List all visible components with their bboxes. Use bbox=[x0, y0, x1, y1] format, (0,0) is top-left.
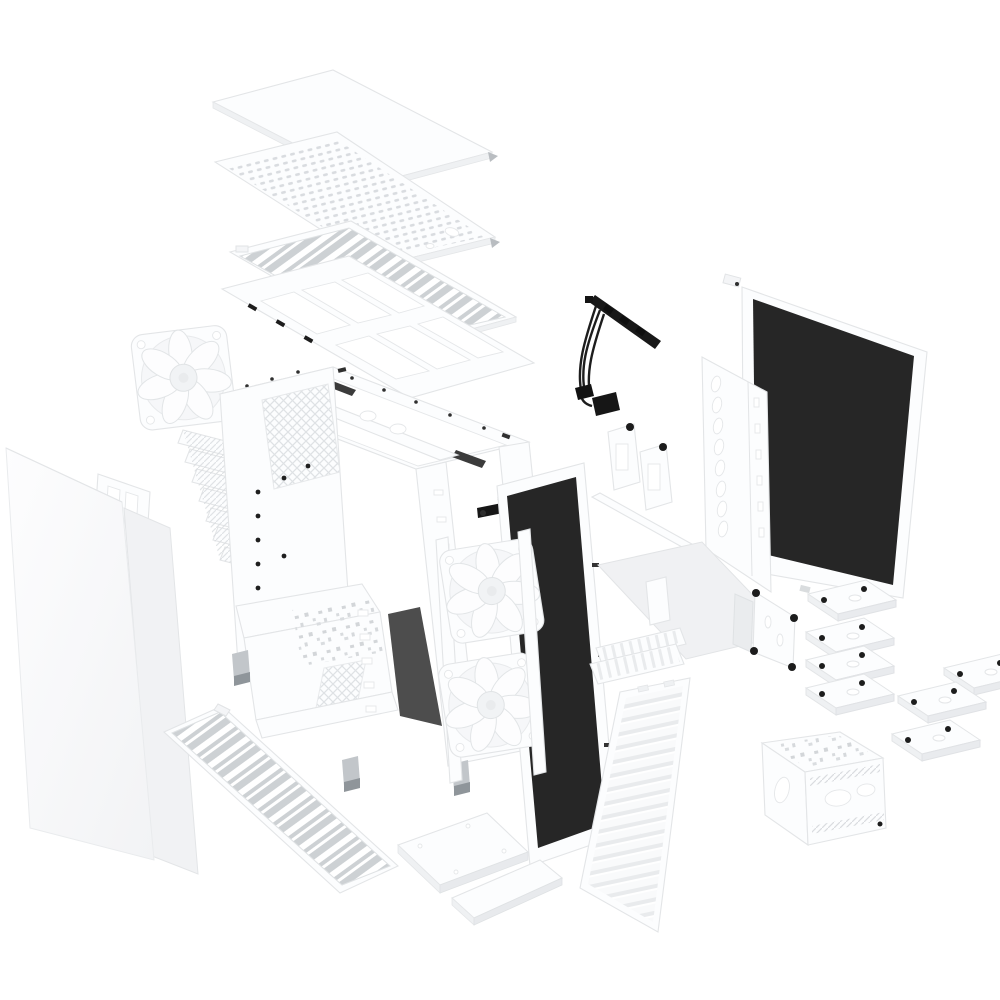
spacer-plate bbox=[733, 594, 753, 652]
io-connector-small bbox=[575, 384, 594, 400]
front-top-vent-insert bbox=[590, 628, 686, 684]
thumbscrew bbox=[659, 443, 667, 451]
ssd-bracket-1 bbox=[608, 423, 640, 490]
io-connector-large bbox=[592, 392, 620, 416]
hdd-cage bbox=[762, 732, 886, 845]
front-io-cable-harness bbox=[575, 295, 661, 416]
hdd-tray bbox=[806, 674, 894, 715]
rear-vent-lattice bbox=[262, 384, 340, 489]
pump-bracket-plate bbox=[750, 589, 798, 671]
hdd-tray bbox=[892, 720, 980, 761]
thumbscrew bbox=[626, 423, 634, 431]
filter-tab bbox=[236, 246, 248, 252]
thumbscrew bbox=[752, 589, 760, 597]
mounting-bracket-small bbox=[646, 577, 670, 625]
panel-clip bbox=[488, 152, 498, 162]
thumbscrew bbox=[750, 647, 758, 655]
ssd-bracket-2 bbox=[640, 443, 672, 510]
thumbscrew bbox=[790, 614, 798, 622]
thumbscrew bbox=[788, 663, 796, 671]
top-panel-stack bbox=[213, 70, 534, 398]
exploded-view-render bbox=[0, 0, 1000, 1000]
pc-case-exploded-diagram bbox=[0, 0, 1000, 1000]
psu-shroud bbox=[236, 584, 398, 738]
